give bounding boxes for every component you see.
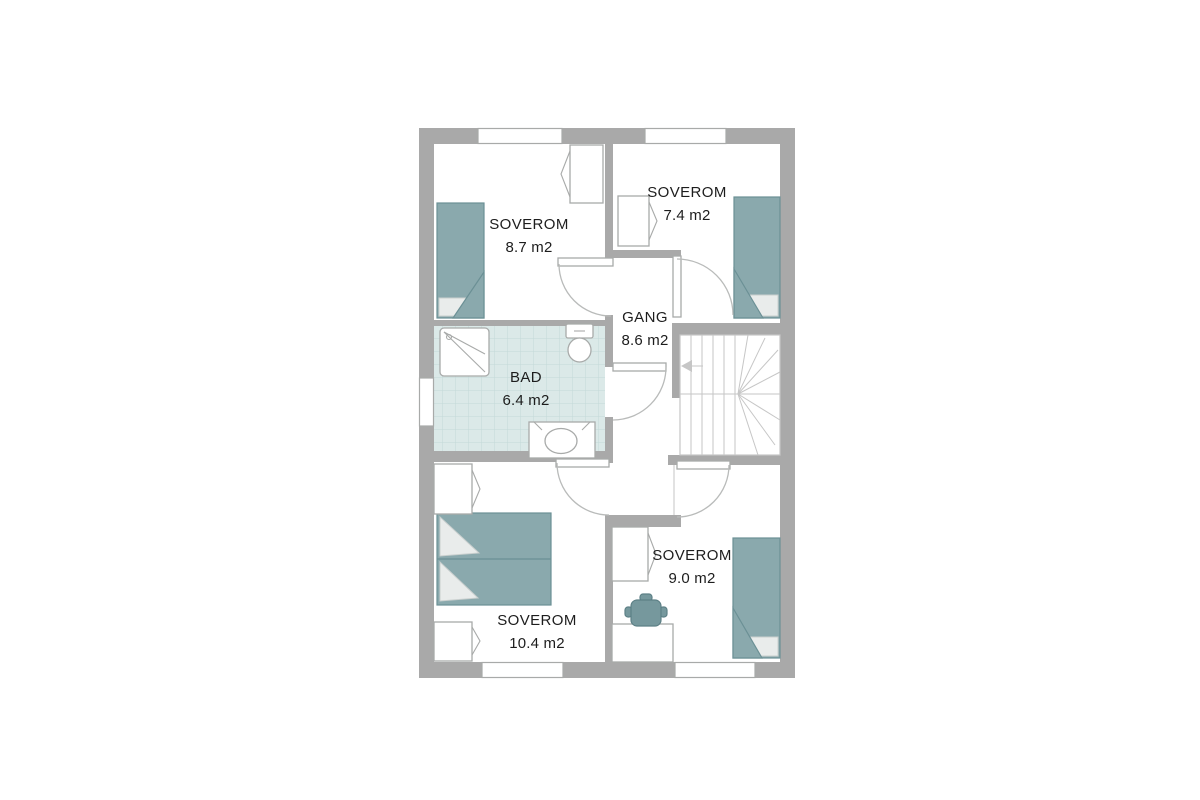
wardrobe-icon [612, 527, 656, 581]
room-name: SOVEROM [652, 544, 731, 567]
floor-plan-drawing [0, 0, 1200, 800]
room-name: GANG [621, 306, 668, 329]
pot-icon [625, 594, 667, 626]
door-ne-bedroom [673, 256, 733, 317]
room-area: 9.0 m2 [652, 567, 731, 590]
single-bed-icon [734, 197, 780, 318]
door-se-bedroom [677, 461, 730, 517]
window-icon [675, 663, 755, 678]
room-name: SOVEROM [647, 181, 726, 204]
room-area: 6.4 m2 [502, 389, 549, 412]
room-label-soverom-sw: SOVEROM 10.4 m2 [497, 609, 576, 655]
room-label-gang: GANG 8.6 m2 [621, 306, 668, 352]
single-bed-icon [437, 203, 484, 318]
room-area: 10.4 m2 [497, 632, 576, 655]
staircase [674, 335, 780, 515]
wardrobe-icon [434, 464, 480, 514]
room-name: SOVEROM [497, 609, 576, 632]
window-icon [420, 378, 434, 426]
room-area: 8.7 m2 [489, 236, 568, 259]
desk [612, 624, 673, 662]
shower-icon [440, 328, 489, 376]
room-area: 8.6 m2 [621, 329, 668, 352]
door-nw-bedroom [558, 258, 613, 316]
wardrobe-icon [561, 145, 603, 203]
room-area: 7.4 m2 [647, 204, 726, 227]
sink-vanity-icon [529, 422, 595, 458]
room-label-bad: BAD 6.4 m2 [502, 366, 549, 412]
wardrobe-icon [434, 622, 480, 661]
double-bed-icon [437, 513, 551, 605]
room-label-soverom-nw: SOVEROM 8.7 m2 [489, 213, 568, 259]
room-label-soverom-ne: SOVEROM 7.4 m2 [647, 181, 726, 227]
floor-plan: SOVEROM 8.7 m2 SOVEROM 7.4 m2 GANG 8.6 m… [0, 0, 1200, 800]
window-icon [645, 129, 726, 144]
room-label-soverom-se: SOVEROM 9.0 m2 [652, 544, 731, 590]
toilet-icon [566, 324, 593, 362]
single-bed-icon [733, 538, 780, 658]
window-icon [482, 663, 563, 678]
door-sw-bedroom [556, 459, 609, 515]
door-bathroom [613, 363, 666, 420]
room-name: BAD [502, 366, 549, 389]
window-icon [478, 129, 562, 144]
room-name: SOVEROM [489, 213, 568, 236]
